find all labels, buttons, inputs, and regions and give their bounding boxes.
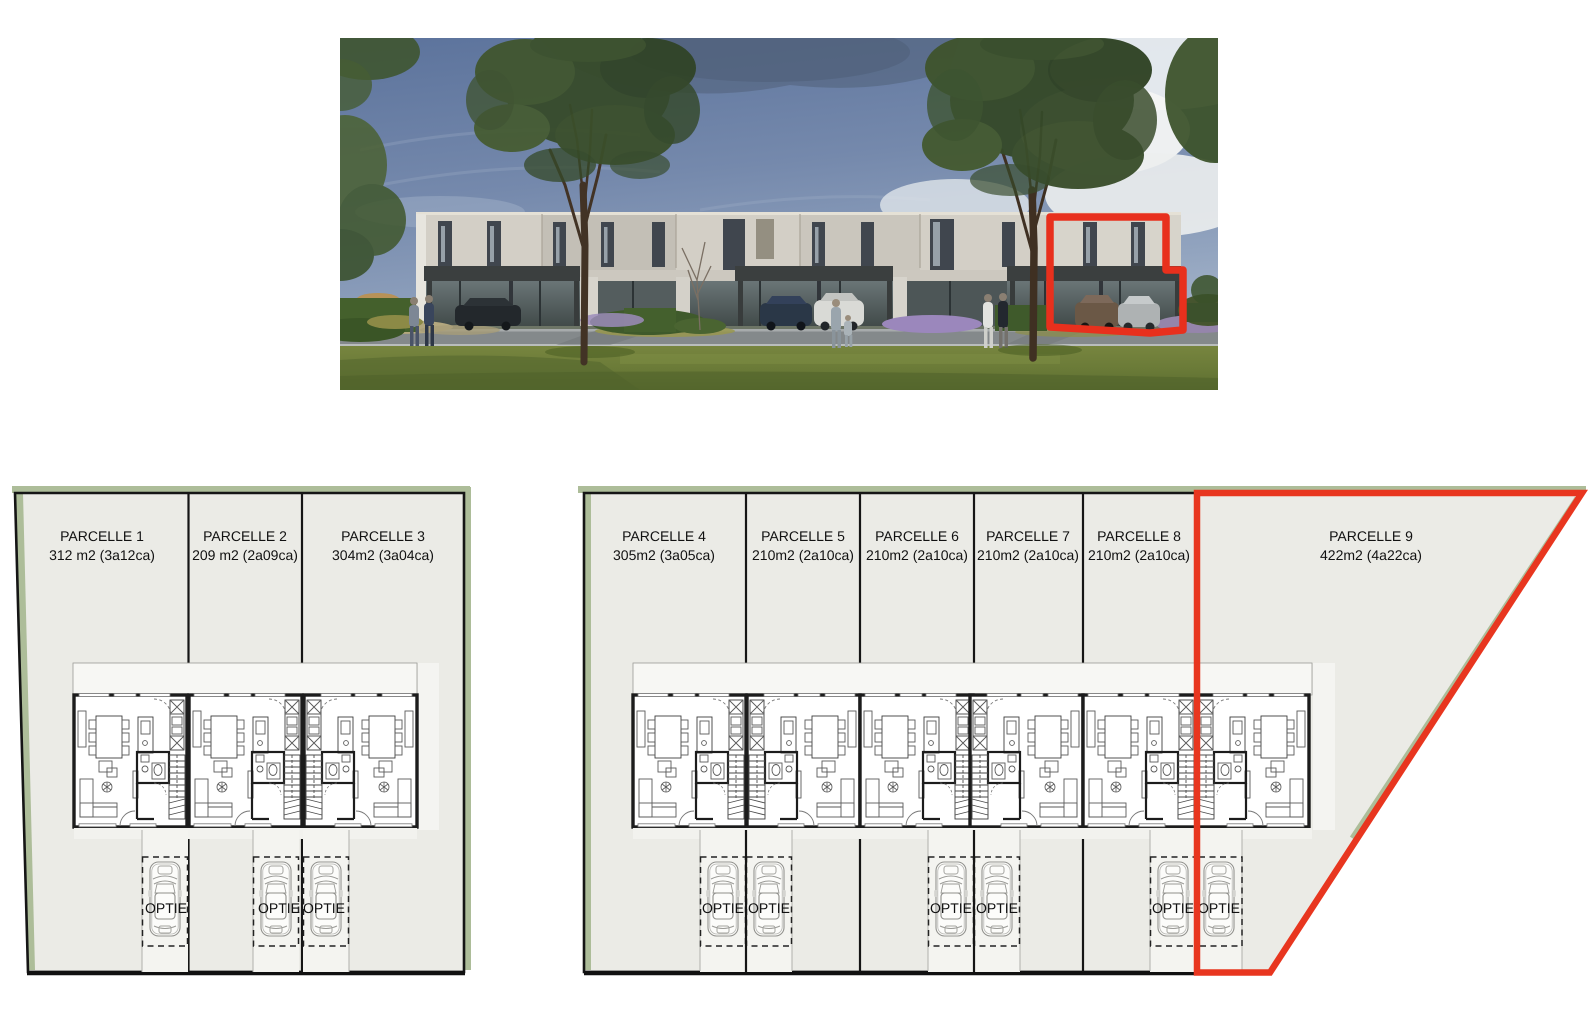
- svg-text:422m2 (4a22ca): 422m2 (4a22ca): [1320, 547, 1422, 563]
- svg-text:209 m2 (2a09ca): 209 m2 (2a09ca): [192, 547, 298, 563]
- svg-text:305m2 (3a05ca): 305m2 (3a05ca): [613, 547, 715, 563]
- svg-text:PARCELLE 3: PARCELLE 3: [341, 528, 425, 544]
- svg-text:210m2 (2a10ca): 210m2 (2a10ca): [866, 547, 968, 563]
- svg-text:PARCELLE 1: PARCELLE 1: [60, 528, 144, 544]
- svg-text:PARCELLE 6: PARCELLE 6: [875, 528, 959, 544]
- svg-text:210m2 (2a10ca): 210m2 (2a10ca): [752, 547, 854, 563]
- svg-text:OPTIE: OPTIE: [1152, 900, 1194, 916]
- svg-text:PARCELLE 5: PARCELLE 5: [761, 528, 845, 544]
- svg-text:PARCELLE 8: PARCELLE 8: [1097, 528, 1181, 544]
- svg-text:312 m2 (3a12ca): 312 m2 (3a12ca): [49, 547, 155, 563]
- svg-text:OPTIE: OPTIE: [930, 900, 972, 916]
- svg-text:PARCELLE 4: PARCELLE 4: [622, 528, 706, 544]
- svg-text:304m2 (3a04ca): 304m2 (3a04ca): [332, 547, 434, 563]
- svg-text:210m2 (2a10ca): 210m2 (2a10ca): [977, 547, 1079, 563]
- svg-text:OPTIE: OPTIE: [258, 900, 300, 916]
- svg-text:OPTIE: OPTIE: [748, 900, 790, 916]
- svg-text:OPTIE: OPTIE: [145, 900, 187, 916]
- svg-text:PARCELLE 9: PARCELLE 9: [1329, 528, 1413, 544]
- svg-text:OPTIE: OPTIE: [976, 900, 1018, 916]
- svg-text:OPTIE: OPTIE: [1198, 900, 1240, 916]
- svg-text:OPTIE: OPTIE: [303, 900, 345, 916]
- svg-text:PARCELLE 2: PARCELLE 2: [203, 528, 287, 544]
- svg-text:210m2 (2a10ca): 210m2 (2a10ca): [1088, 547, 1190, 563]
- svg-text:OPTIE: OPTIE: [702, 900, 744, 916]
- svg-text:PARCELLE 7: PARCELLE 7: [986, 528, 1070, 544]
